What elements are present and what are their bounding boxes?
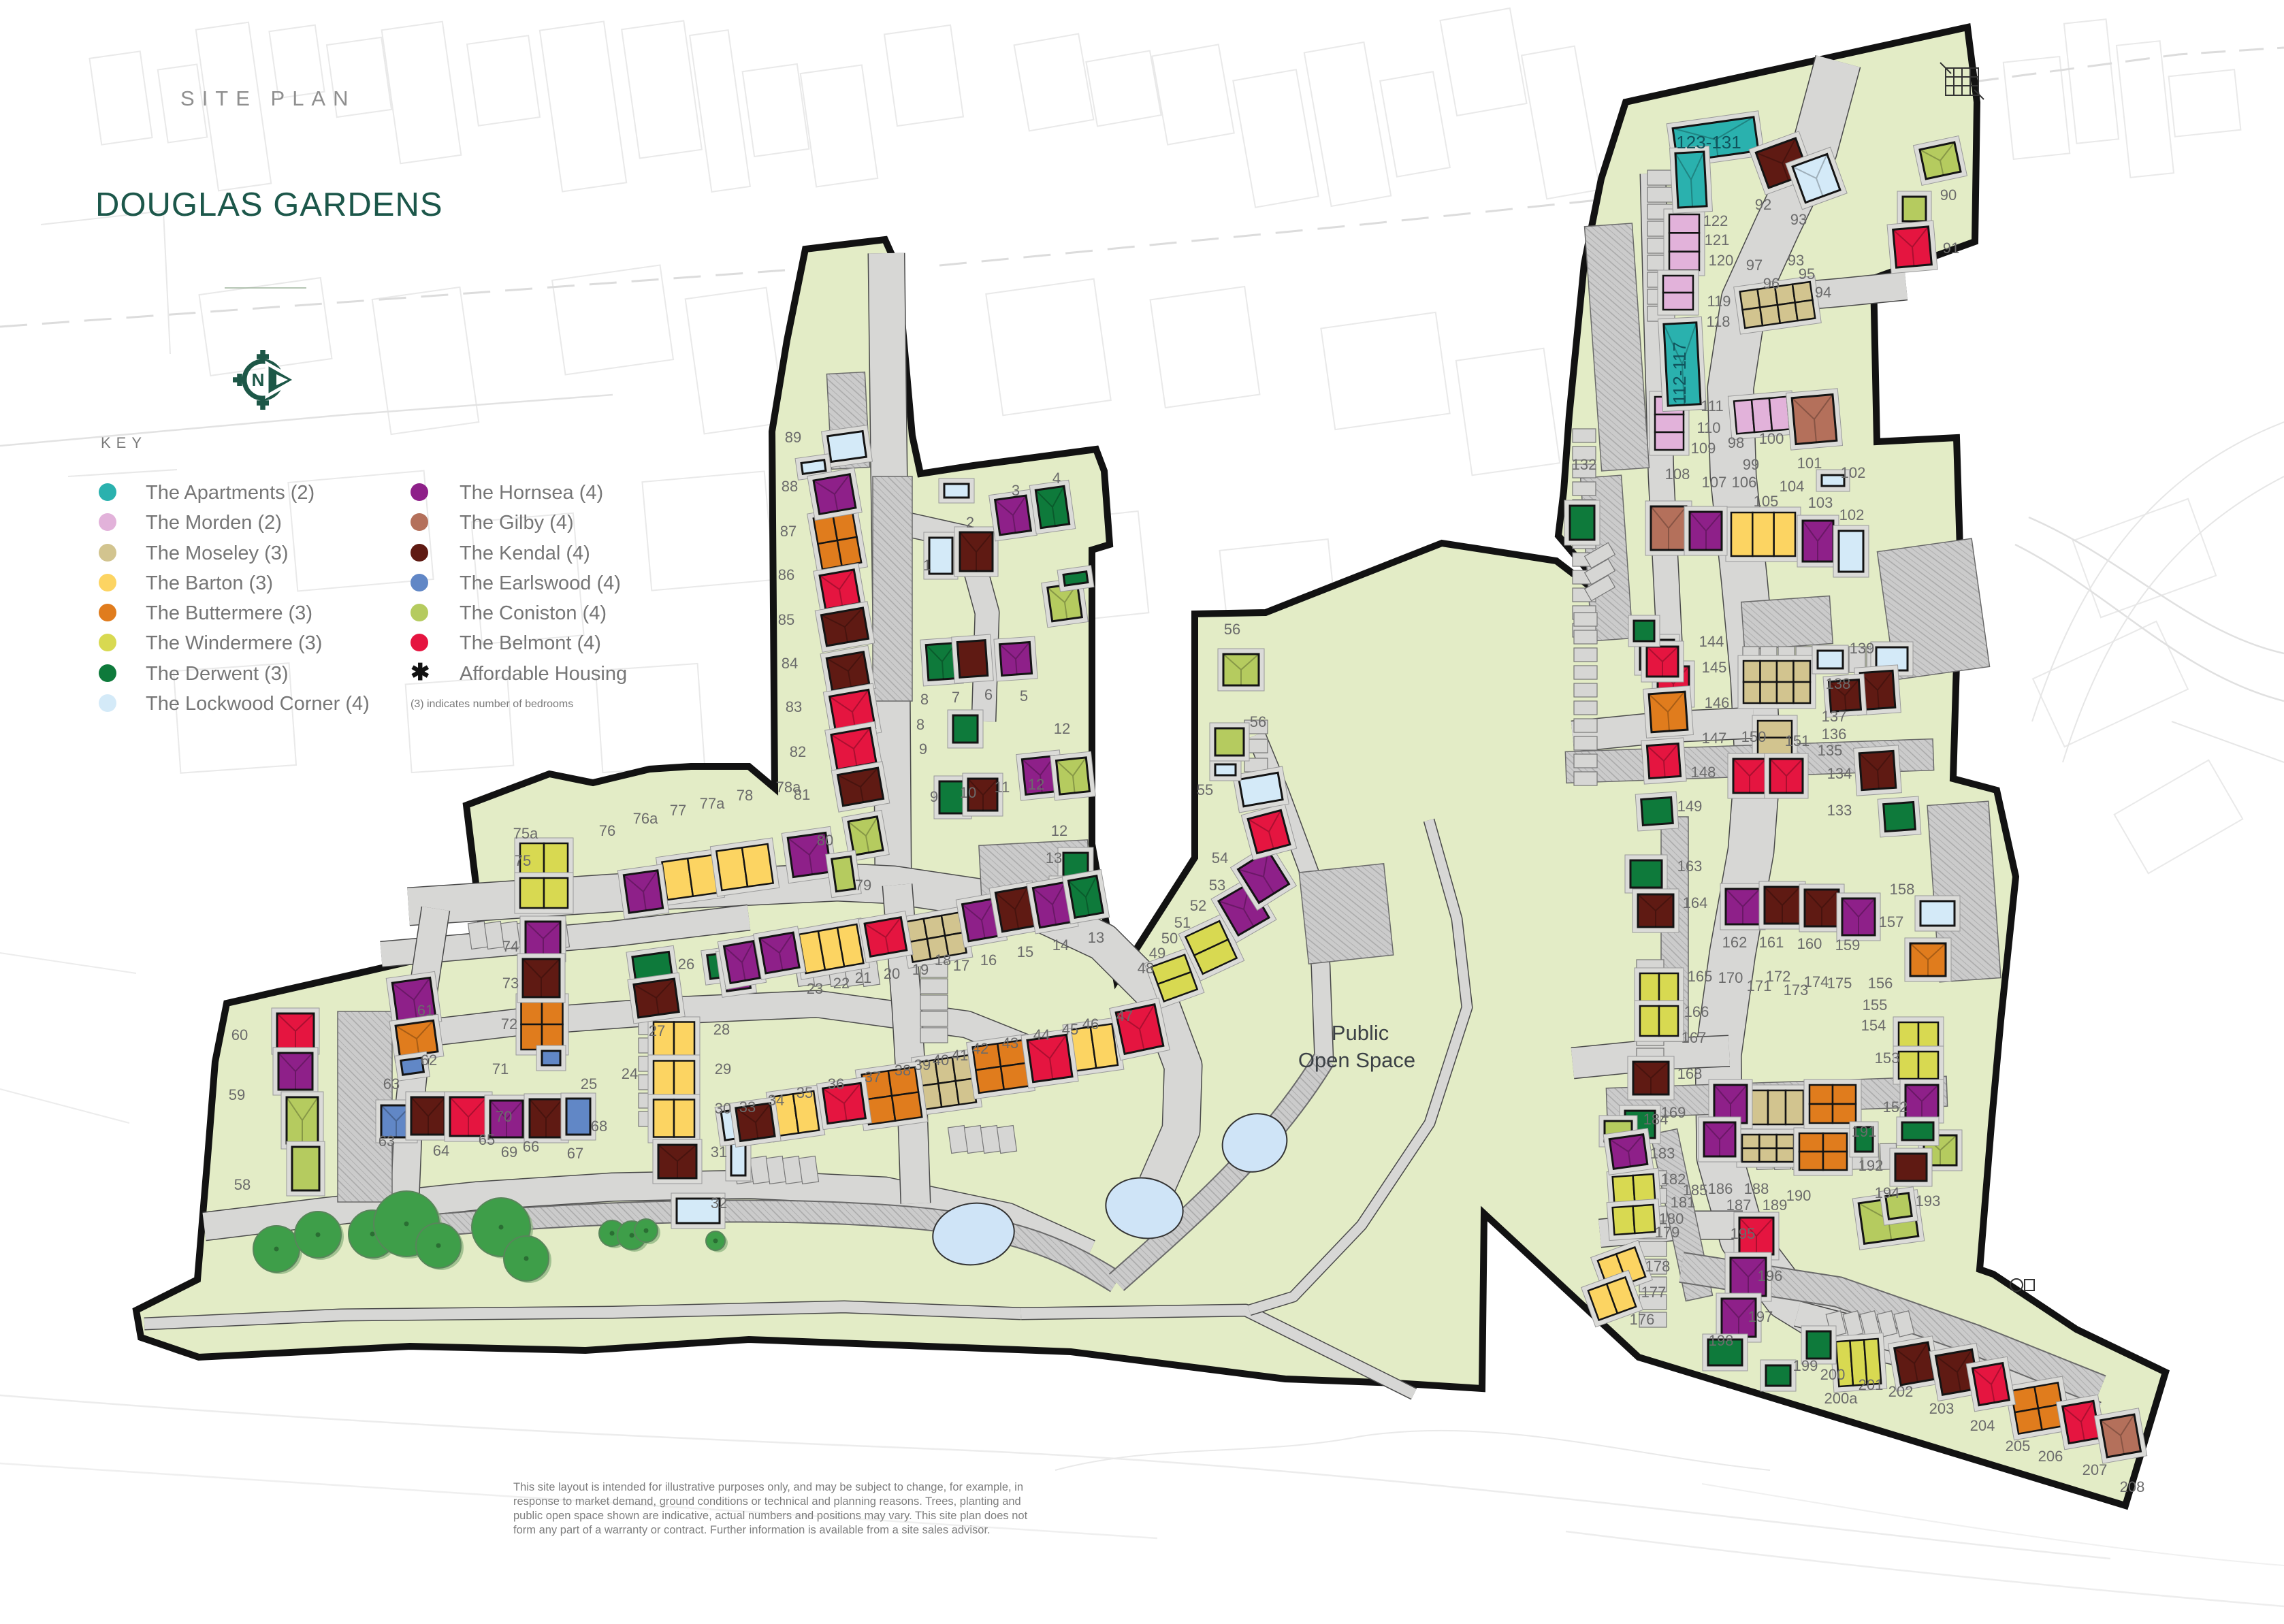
svg-text:Open Space: Open Space: [1298, 1048, 1415, 1072]
svg-text:191: 191: [1852, 1123, 1877, 1140]
svg-text:37: 37: [865, 1069, 881, 1086]
svg-text:80: 80: [817, 832, 833, 849]
svg-text:62: 62: [421, 1052, 437, 1069]
svg-text:177: 177: [1641, 1284, 1667, 1301]
svg-text:176: 176: [1630, 1311, 1655, 1328]
svg-text:21: 21: [855, 969, 871, 986]
svg-text:8: 8: [916, 716, 924, 733]
svg-text:112-117: 112-117: [1669, 342, 1690, 404]
svg-text:102: 102: [1841, 464, 1866, 481]
svg-text:27: 27: [649, 1022, 665, 1039]
svg-text:9: 9: [919, 741, 927, 758]
svg-text:153: 153: [1875, 1050, 1900, 1067]
svg-text:200a: 200a: [1824, 1390, 1859, 1407]
svg-text:response to market demand, gro: response to market demand, ground condit…: [513, 1495, 1021, 1508]
svg-text:The Lockwood Corner (4): The Lockwood Corner (4): [146, 693, 370, 715]
svg-text:1: 1: [923, 557, 931, 574]
svg-text:91: 91: [1943, 240, 1959, 257]
svg-text:11: 11: [995, 779, 1010, 796]
svg-text:The Derwent (3): The Derwent (3): [146, 663, 289, 685]
svg-text:154: 154: [1861, 1017, 1886, 1034]
svg-text:152: 152: [1883, 1099, 1908, 1116]
svg-text:69: 69: [501, 1143, 517, 1160]
svg-text:184: 184: [1643, 1111, 1669, 1128]
svg-text:(3) indicates number of bedroo: (3) indicates number of bedrooms: [411, 698, 573, 710]
svg-text:194: 194: [1875, 1184, 1900, 1201]
svg-text:195: 195: [1731, 1225, 1756, 1242]
svg-text:203: 203: [1929, 1400, 1955, 1417]
svg-text:174: 174: [1804, 973, 1829, 990]
svg-text:24: 24: [622, 1065, 638, 1082]
svg-text:161: 161: [1759, 934, 1784, 951]
svg-text:98: 98: [1728, 434, 1744, 451]
svg-text:170: 170: [1718, 969, 1743, 986]
svg-text:9: 9: [930, 788, 938, 805]
svg-text:68: 68: [591, 1118, 607, 1135]
svg-text:190: 190: [1786, 1187, 1812, 1204]
svg-text:22: 22: [833, 975, 850, 992]
svg-text:145: 145: [1702, 659, 1727, 676]
svg-text:63: 63: [383, 1075, 400, 1092]
svg-text:13: 13: [1088, 929, 1104, 946]
svg-text:105: 105: [1754, 493, 1779, 510]
svg-text:135: 135: [1818, 742, 1843, 759]
svg-text:33: 33: [739, 1099, 756, 1116]
svg-text:75: 75: [515, 852, 531, 869]
svg-text:100: 100: [1759, 430, 1784, 447]
svg-text:16: 16: [980, 952, 997, 969]
svg-text:64: 64: [433, 1142, 449, 1159]
svg-text:168: 168: [1677, 1065, 1703, 1082]
svg-text:14: 14: [1052, 937, 1069, 954]
svg-text:151: 151: [1785, 732, 1810, 749]
svg-text:6: 6: [984, 686, 993, 703]
svg-text:99: 99: [1743, 456, 1759, 473]
svg-text:35: 35: [797, 1084, 813, 1101]
svg-text:7: 7: [952, 689, 960, 706]
svg-text:4: 4: [1052, 470, 1061, 487]
svg-text:159: 159: [1835, 937, 1861, 954]
svg-text:165: 165: [1688, 968, 1713, 985]
svg-text:52: 52: [1190, 897, 1206, 914]
svg-text:63: 63: [379, 1133, 395, 1150]
svg-text:23: 23: [807, 980, 823, 997]
svg-text:106: 106: [1732, 474, 1757, 491]
svg-text:39: 39: [914, 1056, 931, 1073]
svg-text:79: 79: [855, 877, 871, 894]
svg-text:17: 17: [953, 957, 969, 974]
svg-text:90: 90: [1940, 186, 1957, 204]
svg-text:83: 83: [786, 698, 802, 715]
svg-text:26: 26: [678, 956, 694, 973]
svg-text:204: 204: [1970, 1417, 1995, 1434]
svg-text:The Moseley (3): The Moseley (3): [146, 542, 289, 564]
svg-text:78a: 78a: [776, 779, 801, 796]
svg-text:111: 111: [1701, 397, 1723, 415]
svg-text:119: 119: [1707, 293, 1731, 310]
svg-text:193: 193: [1916, 1192, 1941, 1209]
svg-text:206: 206: [2038, 1448, 2063, 1465]
svg-text:44: 44: [1033, 1026, 1050, 1043]
svg-text:28: 28: [713, 1021, 730, 1038]
svg-text:✱: ✱: [411, 660, 430, 685]
svg-text:Affordable Housing: Affordable Housing: [460, 663, 627, 685]
svg-text:200: 200: [1820, 1366, 1846, 1383]
svg-text:144: 144: [1699, 633, 1724, 650]
svg-text:84: 84: [782, 655, 798, 672]
svg-text:61: 61: [417, 1002, 434, 1019]
svg-text:188: 188: [1744, 1180, 1769, 1197]
svg-text:107: 107: [1702, 474, 1727, 491]
svg-text:75a: 75a: [513, 825, 538, 842]
svg-text:SITE PLAN: SITE PLAN: [180, 86, 356, 110]
svg-text:The Belmont (4): The Belmont (4): [460, 632, 601, 654]
svg-text:82: 82: [790, 743, 806, 760]
svg-text:The Barton (3): The Barton (3): [146, 572, 273, 594]
svg-text:123-131: 123-131: [1676, 132, 1741, 152]
svg-text:175: 175: [1827, 975, 1852, 992]
svg-text:179: 179: [1655, 1224, 1680, 1241]
svg-text:146: 146: [1705, 694, 1730, 711]
svg-text:162: 162: [1722, 934, 1748, 951]
svg-text:56: 56: [1224, 621, 1240, 638]
svg-text:147: 147: [1702, 730, 1727, 747]
svg-text:This site layout is intended f: This site layout is intended for illustr…: [513, 1481, 1023, 1493]
svg-text:10: 10: [960, 784, 976, 801]
svg-text:The Morden (2): The Morden (2): [146, 512, 282, 534]
svg-text:139: 139: [1850, 640, 1875, 657]
svg-text:205: 205: [2006, 1438, 2031, 1455]
svg-text:199: 199: [1793, 1357, 1818, 1374]
svg-text:12: 12: [1051, 822, 1067, 839]
svg-text:103: 103: [1808, 494, 1833, 511]
svg-text:74: 74: [502, 938, 519, 955]
svg-text:40: 40: [933, 1052, 949, 1069]
svg-text:96: 96: [1763, 275, 1780, 292]
svg-text:118: 118: [1706, 313, 1730, 330]
svg-text:187: 187: [1726, 1197, 1752, 1214]
svg-text:97: 97: [1746, 257, 1763, 274]
svg-text:34: 34: [768, 1092, 784, 1109]
svg-text:45: 45: [1062, 1021, 1078, 1038]
svg-text:92: 92: [1755, 196, 1771, 213]
svg-text:The Coniston (4): The Coniston (4): [460, 602, 607, 624]
svg-text:132: 132: [1572, 456, 1597, 473]
svg-text:88: 88: [782, 478, 798, 495]
svg-text:36: 36: [828, 1075, 844, 1092]
svg-text:133: 133: [1827, 802, 1852, 819]
svg-text:N: N: [252, 370, 265, 390]
svg-text:50: 50: [1161, 930, 1178, 947]
svg-text:55: 55: [1197, 781, 1213, 798]
svg-text:94: 94: [1815, 284, 1831, 301]
svg-text:3: 3: [1012, 482, 1020, 499]
svg-text:109: 109: [1691, 440, 1716, 457]
svg-text:The Gilby (4): The Gilby (4): [460, 512, 574, 534]
svg-text:The Hornsea (4): The Hornsea (4): [460, 482, 603, 504]
svg-text:31: 31: [711, 1143, 727, 1160]
svg-text:85: 85: [778, 611, 794, 628]
svg-text:198: 198: [1709, 1332, 1734, 1349]
svg-text:The Earlswood (4): The Earlswood (4): [460, 572, 621, 594]
svg-text:202: 202: [1888, 1383, 1914, 1400]
svg-text:The Buttermere (3): The Buttermere (3): [146, 602, 312, 624]
svg-text:102: 102: [1839, 506, 1865, 523]
svg-text:77a: 77a: [700, 795, 725, 812]
svg-text:104: 104: [1780, 478, 1805, 495]
svg-text:163: 163: [1677, 858, 1703, 875]
svg-text:53: 53: [1209, 877, 1225, 894]
svg-text:49: 49: [1149, 945, 1165, 962]
svg-text:148: 148: [1691, 764, 1716, 781]
svg-text:13: 13: [1046, 849, 1062, 866]
svg-text:15: 15: [1017, 943, 1033, 960]
svg-text:66: 66: [523, 1138, 539, 1155]
svg-text:149: 149: [1677, 798, 1703, 815]
svg-text:136: 136: [1822, 726, 1847, 743]
svg-text:73: 73: [502, 975, 519, 992]
svg-text:72: 72: [501, 1016, 517, 1033]
svg-text:41: 41: [952, 1047, 968, 1064]
svg-text:42: 42: [972, 1040, 988, 1057]
svg-text:122: 122: [1703, 212, 1728, 229]
svg-text:138: 138: [1826, 675, 1851, 692]
svg-text:164: 164: [1683, 894, 1708, 911]
svg-text:192: 192: [1859, 1157, 1884, 1174]
svg-text:197: 197: [1748, 1308, 1773, 1325]
svg-text:150: 150: [1741, 728, 1767, 745]
svg-text:70: 70: [496, 1108, 512, 1125]
svg-text:120: 120: [1709, 252, 1734, 269]
svg-text:86: 86: [778, 566, 794, 583]
svg-text:207: 207: [2082, 1461, 2108, 1478]
svg-text:46: 46: [1082, 1016, 1099, 1033]
svg-text:201: 201: [1859, 1376, 1884, 1393]
svg-text:30: 30: [715, 1100, 731, 1117]
svg-text:20: 20: [884, 965, 900, 982]
svg-text:48: 48: [1138, 960, 1154, 977]
svg-text:8: 8: [920, 691, 929, 708]
svg-text:The Apartments (2): The Apartments (2): [146, 482, 315, 504]
svg-text:19: 19: [912, 961, 929, 978]
svg-text:5: 5: [1020, 687, 1028, 704]
svg-text:155: 155: [1863, 996, 1888, 1013]
svg-text:form any part of a warranty or: form any part of a warranty or contract.…: [513, 1524, 991, 1536]
svg-text:54: 54: [1212, 849, 1228, 866]
svg-text:78: 78: [737, 787, 753, 804]
svg-text:47: 47: [1116, 1007, 1133, 1024]
svg-text:183: 183: [1650, 1145, 1675, 1162]
svg-text:71: 71: [492, 1060, 509, 1077]
svg-text:58: 58: [234, 1176, 251, 1193]
svg-text:160: 160: [1797, 935, 1822, 952]
svg-text:167: 167: [1682, 1029, 1707, 1046]
svg-text:101: 101: [1797, 455, 1822, 472]
svg-text:93: 93: [1790, 211, 1807, 228]
svg-text:public open space shown are in: public open space shown are indicative, …: [513, 1510, 1028, 1522]
svg-text:12: 12: [1054, 720, 1070, 737]
svg-text:185: 185: [1683, 1182, 1708, 1199]
svg-text:189: 189: [1763, 1197, 1788, 1214]
svg-text:76: 76: [599, 822, 615, 839]
svg-text:77: 77: [670, 802, 686, 819]
svg-text:186: 186: [1708, 1180, 1733, 1197]
svg-text:134: 134: [1827, 765, 1852, 782]
svg-text:The Kendal (4): The Kendal (4): [460, 542, 590, 564]
svg-text:208: 208: [2120, 1478, 2145, 1495]
svg-text:KEY: KEY: [101, 434, 147, 451]
svg-text:60: 60: [231, 1026, 248, 1043]
svg-text:137: 137: [1822, 708, 1847, 725]
svg-text:108: 108: [1665, 466, 1690, 483]
svg-text:196: 196: [1758, 1267, 1783, 1284]
svg-text:121: 121: [1705, 231, 1730, 248]
svg-text:51: 51: [1174, 914, 1191, 931]
svg-text:43: 43: [1002, 1035, 1018, 1052]
svg-text:110: 110: [1696, 419, 1720, 436]
svg-text:25: 25: [581, 1075, 597, 1092]
svg-text:65: 65: [479, 1131, 495, 1148]
svg-text:67: 67: [567, 1145, 583, 1162]
svg-text:156: 156: [1868, 975, 1893, 992]
svg-text:76a: 76a: [633, 810, 658, 827]
svg-text:29: 29: [715, 1060, 731, 1077]
svg-text:157: 157: [1879, 913, 1904, 930]
svg-text:18: 18: [935, 952, 951, 969]
svg-text:87: 87: [780, 523, 797, 540]
svg-text:12: 12: [1028, 776, 1044, 793]
svg-text:38: 38: [895, 1062, 911, 1079]
svg-text:95: 95: [1799, 265, 1815, 282]
svg-text:32: 32: [711, 1195, 727, 1212]
svg-text:Public: Public: [1332, 1021, 1389, 1045]
svg-text:DOUGLAS GARDENS: DOUGLAS GARDENS: [95, 186, 443, 223]
svg-text:The Windermere (3): The Windermere (3): [146, 632, 322, 654]
svg-text:59: 59: [229, 1086, 245, 1103]
svg-text:178: 178: [1645, 1258, 1671, 1275]
svg-text:166: 166: [1684, 1003, 1709, 1020]
svg-text:158: 158: [1890, 881, 1915, 898]
svg-text:56: 56: [1250, 713, 1266, 730]
svg-text:89: 89: [785, 429, 801, 446]
svg-text:2: 2: [966, 514, 974, 531]
